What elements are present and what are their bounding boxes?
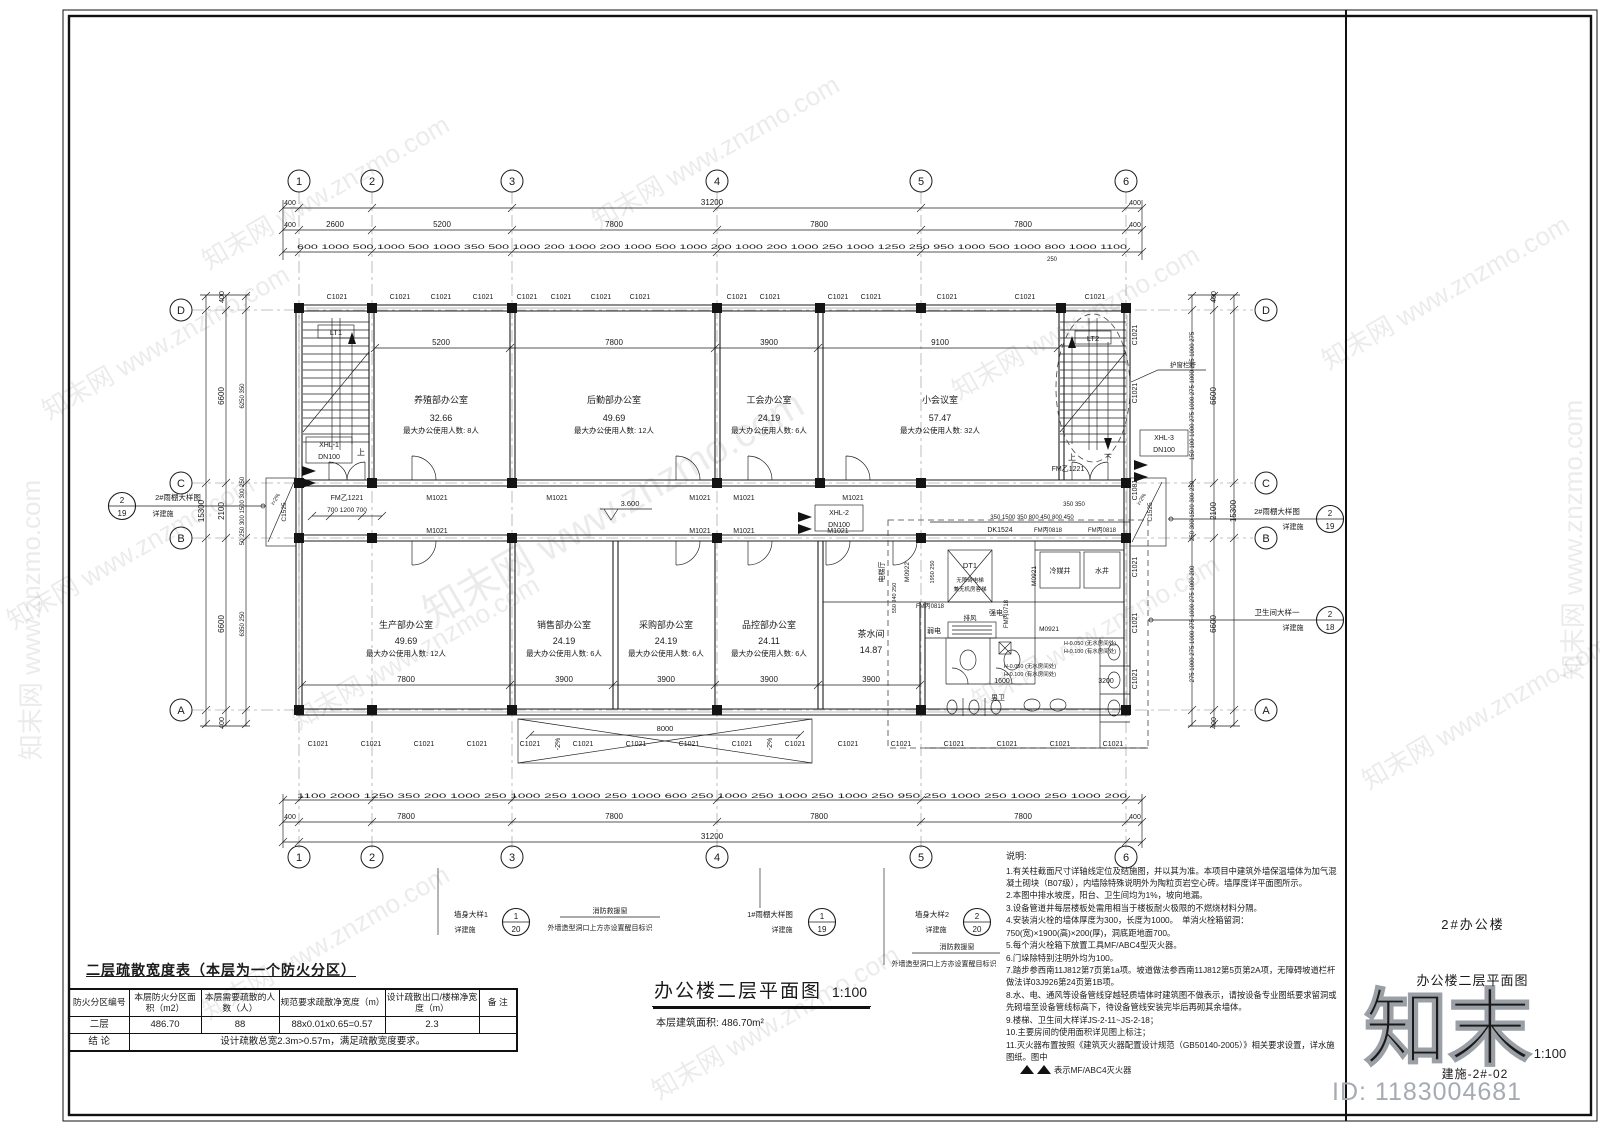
dim-label: 400: [284, 222, 296, 229]
door-tag: M1021: [426, 528, 448, 535]
callout-ref: 详建施: [455, 925, 476, 934]
callout-rescue-window-1: 消防救援窗 外墙造型洞口上方亦设置醒目标识: [548, 906, 661, 932]
evacuation-table: 防火分区编号 本层防火分区面积（m2） 本层需要疏散的人数（人） 规范要求疏散净…: [68, 988, 518, 1052]
dim-label: 7800: [605, 220, 623, 229]
cell-area: 486.70: [129, 1016, 201, 1033]
pipe-size-tag: DN100: [1153, 447, 1175, 454]
callout-label: 2#雨棚大样图: [1254, 506, 1300, 516]
room-name: 工会办公室: [746, 394, 791, 405]
window-tag: C1021: [327, 294, 348, 301]
watermark: 知末网 www.znzmo.com: [37, 259, 295, 425]
dim-label: 31200: [701, 832, 724, 841]
room-name: 销售部办公室: [537, 619, 591, 630]
room-name: 茶水间: [857, 628, 884, 639]
dim-label: 7800: [1014, 220, 1032, 229]
dim-label: 3900: [657, 675, 675, 684]
dim-label: 3200: [1098, 678, 1114, 685]
dim-detail-row: 1950 250: [930, 561, 936, 584]
grid-bubble-label: 2: [369, 852, 375, 864]
watermark: 知末网 www.znzmo.com: [587, 69, 845, 235]
col-header: 防火分区编号: [69, 989, 129, 1016]
dim-label: 2100: [1209, 502, 1218, 520]
slope-label: -2%: [555, 738, 562, 750]
col-header: 规范要求疏散净宽度（m）: [279, 989, 385, 1016]
rescue-window-note: 外墙造型洞口上方亦设置醒目标识: [548, 923, 653, 932]
dim-label: 6600: [217, 387, 226, 405]
dim-detail-row: 275 1000 275 1000 275 1000 275 1000 200: [1190, 565, 1196, 682]
door-tag: M1021: [546, 495, 568, 502]
dim-label: 9100: [931, 338, 949, 347]
dim-detail-row: 6350 250: [240, 611, 246, 637]
window-tag: C1021: [467, 741, 488, 748]
window-tag: C1021: [1050, 741, 1071, 748]
room-name: 强电: [989, 608, 1003, 617]
level-mark: 3.600: [621, 499, 640, 508]
col-header: 设计疏散出口/楼梯净宽度（m）: [385, 989, 479, 1016]
dim-detail-row: 600 1000 500 1000 500 1000 350 500 1000 …: [297, 245, 1128, 251]
room-name: 弱电: [927, 626, 941, 635]
rail-note: 护窗栏杆: [1170, 360, 1197, 369]
room-name: 后勤部办公室: [587, 394, 641, 405]
dim-label: 6600: [217, 615, 226, 633]
window-tag: C1021: [679, 741, 700, 748]
room-occupancy: 最大办公使用人数: 6人: [731, 425, 807, 435]
door-tag: FM丙0818: [1034, 527, 1063, 534]
grid-bubble-label: 5: [918, 852, 924, 864]
grid-bubble-label: C: [1262, 478, 1270, 490]
rescue-window-label: 消防救援窗: [940, 942, 975, 951]
door-tag: M1021: [842, 495, 864, 502]
dim-label: 3900: [862, 675, 880, 684]
dim-label: 7800: [810, 812, 828, 821]
window-tag: C1525: [1147, 502, 1154, 522]
door-tag: FM丙0818: [916, 603, 945, 610]
callout-sheet: 20: [973, 925, 982, 934]
window-tag: C1021: [551, 294, 572, 301]
dim-detail-row: 700 1200 700: [327, 507, 367, 514]
grid-bubble-label: A: [177, 705, 185, 717]
window-tag: C1021: [1015, 294, 1036, 301]
stair-tag: LT1: [330, 328, 342, 337]
notes-title: 说明:: [1006, 850, 1340, 864]
stair-direction-label: 下: [1104, 453, 1112, 462]
dim-label: 6600: [1209, 387, 1218, 405]
watermark-id: ID: 1183004681: [1332, 1078, 1600, 1107]
legend-text: 表示MF/ABC4灭火器: [1054, 1064, 1131, 1076]
room-area: 24.11: [758, 636, 780, 646]
dim-label: 15300: [197, 499, 206, 522]
pipe-size-tag: DN100: [318, 454, 340, 461]
room-area: 57.47: [929, 413, 952, 423]
note-item: 7.踏步参西南11J812第7页第1a项。坡道做法参西南11J812第5页第2A…: [1006, 964, 1340, 989]
callout-ref: 详建施: [153, 509, 174, 518]
callout-label: 2#雨棚大样图: [155, 492, 201, 502]
dim-label: 2100: [217, 502, 226, 520]
door-tag: M1021: [689, 495, 711, 502]
dim-detail-row: 50 250 300 1500 300 250: [240, 476, 246, 545]
shaft-label: 冷媒井: [1050, 566, 1071, 575]
window-tag: C1021: [1132, 613, 1139, 634]
grid-bubble-label: 1: [296, 176, 302, 188]
callout-number: 1: [514, 912, 519, 921]
room-name: 排风: [964, 613, 978, 622]
col-header: 备 注: [479, 989, 517, 1016]
note-item: 10.主要房间的使用面积详见图上标注；: [1006, 1026, 1340, 1038]
door-tag: M1021: [689, 528, 711, 535]
watermark: 知末网 www.znzmo.com: [1558, 400, 1588, 680]
cell-design-width: 2.3: [385, 1016, 479, 1033]
stair-tag: LT2: [1087, 334, 1099, 343]
dimension-labels: 31200 400 400 2600 5200 7800 7800 7800 4…: [197, 198, 1238, 841]
watermark-layer: 知末网 www.znzmo.com 知末网 www.znzmo.com 知末网 …: [2, 69, 1600, 1105]
dim-label: 400: [1211, 717, 1218, 729]
callout-ref: 详建施: [1283, 623, 1304, 632]
hydrant-riser-tag: XHL-2: [829, 510, 849, 517]
dim-label: 250: [1047, 257, 1058, 263]
callout-label: 1#雨棚大样图: [747, 909, 793, 919]
dim-label: 31200: [701, 198, 724, 207]
grid-bubble-label: 4: [714, 176, 720, 188]
door-tag: DK1524: [987, 527, 1012, 534]
window-tag: C1021: [630, 294, 651, 301]
plan-caption: 办公楼二层平面图1:100 本层建筑面积: 486.70m²: [652, 976, 982, 1029]
stair-direction-label: 上: [357, 448, 365, 457]
dim-detail-row: 550 940 250: [892, 583, 898, 614]
table-row: 二层 486.70 88 88x0.01x0.65=0.57 2.3: [69, 1016, 517, 1033]
dim-label: 7800: [605, 338, 623, 347]
window-tag: C1081: [1132, 480, 1139, 501]
room-name: 男卫: [991, 694, 1005, 702]
grid-bubble-label: 1: [296, 852, 302, 864]
dim-label: 7800: [1014, 812, 1032, 821]
grid-bubble-label: B: [1262, 533, 1269, 545]
window-tag: C1021: [591, 294, 612, 301]
dim-label: 7800: [397, 812, 415, 821]
room-area: 49.69: [603, 413, 626, 423]
extinguisher-icon: [1037, 1065, 1051, 1074]
door-tag: M0921: [1031, 566, 1038, 586]
callout-label: 墙身大样2: [915, 909, 949, 919]
window-tag: C1021: [1132, 669, 1139, 690]
dim-label: 400: [219, 291, 226, 303]
grid-bubble-label: D: [177, 305, 185, 317]
callout-sheet: 20: [512, 925, 521, 934]
dim-label: 5200: [433, 220, 451, 229]
hydrant-riser-tag: XHL-3: [1154, 435, 1174, 442]
note-item: 2.本图中排水坡度，阳台、卫生间均为1%，坡向地漏。: [1006, 889, 1340, 901]
dim-label: 400: [1129, 200, 1141, 207]
room-name: 小会议室: [922, 394, 958, 405]
dim-detail-row: 350 350: [1063, 502, 1085, 508]
window-tag: C1021: [1085, 294, 1106, 301]
room-area: 24.19: [553, 636, 576, 646]
project-name: 2#办公楼: [1408, 914, 1538, 933]
col-header: 本层需要疏散的人数（人）: [201, 989, 279, 1016]
window-tag: C1021: [937, 294, 958, 301]
window-tag: C1021: [308, 741, 329, 748]
window-tag: C1021: [997, 741, 1018, 748]
callout-rescue-window-2: 消防救援窗 外墙造型洞口上方亦设置醒目标识: [892, 942, 1001, 968]
dim-label: 400: [1211, 291, 1218, 303]
cell-conclusion: 设计疏散总宽2.3m>0.57m，满足疏散宽度要求。: [129, 1033, 517, 1050]
room-area: 24.19: [758, 413, 781, 423]
slope-label: -2%: [767, 738, 774, 750]
room-name: 品控部办公室: [742, 619, 796, 630]
plan-area-note: 本层建筑面积: 486.70m²: [656, 1014, 982, 1029]
window-tag: C1021: [891, 741, 912, 748]
window-tag: C1021: [520, 741, 541, 748]
window-tag: C1021: [727, 294, 748, 301]
dim-detail-row: 1100 2000 1250 350 200 1000 250 1000 250…: [297, 794, 1128, 800]
dim-label: 8000: [657, 724, 674, 733]
level-note: H-0.050 (无水房间处): [1004, 662, 1056, 670]
cell-conclusion-label: 结 论: [69, 1033, 129, 1050]
grid-bubble-labels: 1 2 3 4 5 6 1 2 3 4 5 6 D C B A D C B A: [177, 176, 1270, 864]
callout-number: 2: [1328, 509, 1333, 518]
callout-number: 2: [1328, 610, 1333, 619]
room-occupancy: 最大办公使用人数: 12人: [574, 425, 655, 435]
room-name: 生产部办公室: [379, 619, 433, 630]
room-occupancy: 最大办公使用人数: 6人: [628, 648, 704, 658]
window-tag: C1021: [760, 294, 781, 301]
table-header-row: 防火分区编号 本层防火分区面积（m2） 本层需要疏散的人数（人） 规范要求疏散净…: [69, 989, 517, 1016]
hydrant-riser-tag: XHL-1: [319, 442, 339, 449]
grid-bubble-label: 3: [509, 176, 515, 188]
callout-ref: 详建施: [772, 925, 793, 934]
grid-bubble-label: D: [1262, 305, 1270, 317]
window-tag: C1021: [1132, 383, 1139, 404]
plan-title: 办公楼二层平面图: [654, 981, 822, 1002]
dim-detail-row: 150 100 1000 275 1000 275 1000 275 1000 …: [1190, 331, 1196, 460]
dim-label: 400: [284, 814, 296, 821]
dim-label: 7800: [810, 220, 828, 229]
callout-ref: 详建施: [926, 925, 947, 934]
note-item: 11.灭火器布置按照《建筑灭火器配置设计规范（GB50140-2005）》相关要…: [1006, 1039, 1340, 1064]
drawing-scale: 1:100: [1520, 1046, 1580, 1061]
callout-number: 2: [975, 912, 980, 921]
cell-remark: [479, 1016, 517, 1033]
watermark: 知末网 www.znzmo.com: [1317, 209, 1575, 375]
dim-label: 7800: [605, 812, 623, 821]
window-tag: C1021: [1132, 557, 1139, 578]
table-conclusion-row: 结 论 设计疏散总宽2.3m>0.57m，满足疏散宽度要求。: [69, 1033, 517, 1050]
note-item: 3.设备管道井每层楼板处需用相当于楼板耐火极限的不燃烧材料分隔。: [1006, 902, 1340, 914]
callout-number: 1: [820, 912, 825, 921]
window-tag: C1021: [1103, 741, 1124, 748]
callout-ref: 详建施: [1283, 522, 1304, 531]
grid-bubble-label: 4: [714, 852, 720, 864]
room-area: 49.69: [395, 636, 418, 646]
elevator-note: 无障碍电梯: [956, 576, 984, 584]
door-tag: M1021: [827, 528, 849, 535]
title-panel-divider: [1345, 10, 1347, 1121]
grid-bubble-label: B: [177, 533, 184, 545]
dim-label: 400: [1129, 222, 1141, 229]
level-note: H-0.100 (有水房间处): [1004, 670, 1056, 678]
rescue-window-label: 消防救援窗: [593, 906, 628, 915]
table-title: 二层疏散宽度表（本层为一个防火分区）: [86, 960, 492, 980]
dim-detail-row: 6250 350: [240, 383, 246, 409]
callout-canopy1: 1 19 1#雨棚大样图 详建施: [747, 868, 835, 936]
window-tag: C1021: [838, 741, 859, 748]
elevator-tag: DT1: [963, 561, 977, 570]
dim-label: 3900: [760, 338, 778, 347]
watermark: 知末网 www.znzmo.com: [16, 480, 46, 760]
room-name: 采购部办公室: [639, 619, 693, 630]
window-tag: C1021: [431, 294, 452, 301]
stair-lt1: LT1 XHL-1 DN100 上: [303, 318, 369, 463]
col-header: 本层防火分区面积（m2）: [129, 989, 201, 1016]
callout-sheet: 19: [118, 509, 127, 518]
note-item: 9.楼梯、卫生间大样详JS-2-11~JS-2-18；: [1006, 1014, 1340, 1026]
window-tag: C1021: [517, 294, 538, 301]
window-tag: C1021: [573, 741, 594, 748]
znzmo-logo: 知末: [1364, 982, 1532, 1076]
drawing-name: 办公楼二层平面图: [1390, 970, 1555, 989]
room-occupancy: 最大办公使用人数: 32人: [900, 425, 981, 435]
callout-sheet: 19: [1326, 522, 1335, 531]
window-tag: C1021: [414, 741, 435, 748]
door-tag: FM丙0718: [1003, 599, 1010, 628]
grid-lines: [192, 192, 1253, 850]
shaft-label: 水井: [1095, 566, 1109, 575]
door-tag: M0922: [904, 562, 911, 582]
door-tag: M1021: [426, 495, 448, 502]
dim-label: 3900: [555, 675, 573, 684]
notes-block: 说明: 1.有关柱截面尺寸详轴线定位及结施图，并以其为准。本项目中建筑外墙保温墙…: [1006, 850, 1340, 1076]
grid-bubble-label: C: [177, 478, 185, 490]
dim-label: 400: [219, 717, 226, 729]
grid-bubble-label: 3: [509, 852, 515, 864]
room-occupancy: 最大办公使用人数: 6人: [526, 648, 602, 658]
room-area: 14.87: [860, 645, 883, 655]
room-name: 养殖部办公室: [414, 394, 468, 405]
note-item: 6.门垛除特别注明外均为100。: [1006, 952, 1340, 964]
plan-scale: 1:100: [832, 984, 867, 1000]
window-tag: C1021: [1132, 325, 1139, 346]
dim-label: 400: [1129, 814, 1141, 821]
cell-people: 88: [201, 1016, 279, 1033]
door-tag: FM乙1221: [331, 494, 364, 502]
extinguisher-legend: 表示MF/ABC4灭火器: [1020, 1064, 1340, 1076]
level-note: H-0.050 (无水房间处): [1064, 639, 1116, 647]
grid-bubble-label: 2: [369, 176, 375, 188]
rescue-window-note: 外墙造型洞口上方亦设置醒目标识: [892, 959, 997, 968]
dim-label: 3900: [760, 675, 778, 684]
window-tag: C1021: [361, 741, 382, 748]
dim-label: 400: [284, 200, 296, 207]
dim-label: 5200: [432, 338, 450, 347]
grid-bubble-label: A: [1262, 705, 1270, 717]
window-tag: C1021: [828, 294, 849, 301]
window-tag: C1021: [861, 294, 882, 301]
callout-sheet: 19: [818, 925, 827, 934]
door-tag: M0921: [1039, 626, 1059, 633]
stair-direction-label: 上: [1068, 453, 1076, 462]
dim-detail-row: 250 300 1500 300 250: [1190, 480, 1196, 541]
window-tag: C1021: [626, 741, 647, 748]
window-tag: C1021: [732, 741, 753, 748]
note-item: 4.安装消火栓的墙体厚度为300，长度为1000。 单消火栓箱留洞：750(宽)…: [1006, 914, 1340, 939]
window-tag: C1021: [944, 741, 965, 748]
room-area: 24.19: [655, 636, 678, 646]
note-item: 5.每个消火栓箱下放置工具MF/ABC4型灭火器。: [1006, 939, 1340, 951]
room-occupancy: 最大办公使用人数: 8人: [403, 425, 479, 435]
cell-required-width: 88x0.01x0.65=0.57: [279, 1016, 385, 1033]
room-occupancy: 最大办公使用人数: 12人: [366, 648, 447, 658]
note-item: 8.水、电、通风等设备管线穿越轻质墙体时建筑图不做表示，请按设备专业图纸要求留洞…: [1006, 989, 1340, 1014]
room-occupancy: 最大办公使用人数: 6人: [731, 648, 807, 658]
grid-bubble-label: 5: [918, 176, 924, 188]
door-tag: FM乙1221: [1052, 465, 1085, 473]
note-item: 1.有关柱截面尺寸详轴线定位及结施图，并以其为准。本项目中建筑外墙保温墙体为加气…: [1006, 865, 1340, 890]
window-tag: C1021: [785, 741, 806, 748]
callout-label: 卫生间大样一: [1255, 607, 1300, 617]
dim-label: 7800: [397, 675, 415, 684]
door-tag: M1021: [733, 495, 755, 502]
evacuation-table-block: 二层疏散宽度表（本层为一个防火分区） 防火分区编号 本层防火分区面积（m2） 本…: [68, 960, 492, 1052]
window-tag: C1525: [281, 502, 288, 522]
callout-label: 墙身大样1: [454, 909, 488, 919]
window-tag: C1021: [473, 294, 494, 301]
cell-zone: 二层: [69, 1016, 129, 1033]
elevator-note: 兼无机房客梯: [953, 585, 987, 593]
callout-sheet: 18: [1326, 623, 1335, 632]
door-tag: M1021: [733, 528, 755, 535]
room-name: 电梯厅: [877, 562, 886, 583]
callout-wall1: 1 20 墙身大样1 详建施: [438, 868, 530, 936]
dim-label: 6600: [1209, 615, 1218, 633]
level-note: H-0.100 (有水房间处): [1064, 647, 1116, 655]
window-tag: C1021: [390, 294, 411, 301]
grid-bubble-label: 6: [1123, 176, 1129, 188]
callout-wall2: 2 20 墙身大样2 详建施: [884, 868, 991, 965]
dim-label: 2600: [326, 220, 344, 229]
room-area: 32.66: [430, 413, 453, 423]
callout-number: 2: [120, 496, 125, 505]
callout-wc-detail: 2 18 卫生间大样一 详建施: [1148, 607, 1344, 634]
door-tag: FM丙0818: [1088, 527, 1117, 534]
extinguisher-icon: [1020, 1065, 1034, 1074]
